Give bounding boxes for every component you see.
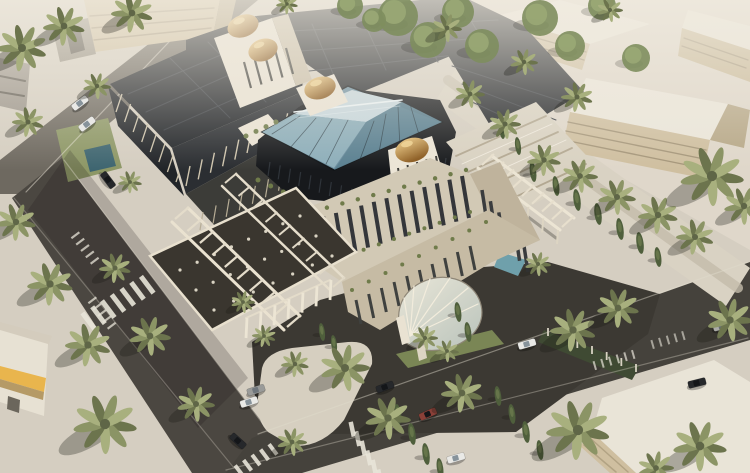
dot [330, 254, 333, 257]
palm-crown-center [468, 92, 473, 97]
palm-crown-center [18, 44, 26, 52]
palm-crown-center [100, 419, 110, 429]
tree-crown-light [558, 34, 576, 52]
dot [433, 176, 437, 180]
palm-crown-center [46, 280, 53, 287]
palm-crown-center [25, 119, 30, 124]
tick [330, 280, 331, 300]
dot [356, 197, 360, 201]
dot [212, 281, 215, 284]
dot [387, 189, 391, 193]
dot [434, 246, 438, 250]
tree-crown-light [625, 47, 642, 64]
palm-crown-center [502, 121, 507, 126]
dot [252, 290, 255, 293]
palm-crown-center [574, 94, 579, 99]
palm-crown-center [128, 180, 132, 184]
palm-crown-center [193, 401, 199, 407]
dot [350, 288, 354, 292]
tree-crown-light [445, 0, 464, 18]
palm-crown-center [285, 2, 289, 6]
dot [400, 263, 404, 267]
palm-crown-center [445, 26, 450, 31]
palm-crown-center [522, 60, 526, 64]
tree-crown-light [468, 32, 488, 52]
dot [178, 268, 181, 271]
palm-crown-center [707, 171, 717, 181]
palm-crown-center [423, 336, 427, 340]
dot [448, 172, 452, 176]
dot [280, 250, 283, 253]
dot [451, 237, 455, 241]
palm-crown-center [112, 265, 117, 270]
palm-crown-center [541, 157, 546, 162]
palm-crown-center [241, 300, 245, 304]
dot [298, 214, 301, 217]
palm-crown-center [614, 194, 620, 200]
tree-crown-light [364, 10, 378, 24]
dot [384, 271, 388, 275]
dot [247, 238, 250, 241]
palm-crown-center [536, 262, 540, 266]
palm-crown-center [290, 440, 295, 445]
palm-crown-center [384, 414, 391, 421]
dot [468, 210, 472, 214]
palm-crown-center [262, 334, 266, 338]
palm-crown-center [569, 326, 576, 333]
aerial-render-figure [0, 0, 750, 473]
dot [291, 272, 294, 275]
screenshot-root [0, 0, 750, 473]
palm-crown-center [741, 203, 747, 209]
dot [194, 288, 197, 291]
palm-crown-center [459, 390, 466, 397]
dot [417, 180, 421, 184]
tick [542, 218, 543, 232]
palm-crown-center [95, 84, 99, 88]
palm-crown-center [692, 234, 698, 240]
palm-crown-center [655, 212, 661, 218]
dot [392, 237, 396, 241]
dot [256, 178, 261, 183]
palm-crown-center [615, 305, 622, 312]
tree-crown-light [526, 4, 548, 26]
palm-crown-center [61, 23, 68, 30]
dot [377, 242, 381, 246]
scene-svg [0, 0, 750, 473]
dot [196, 261, 199, 264]
palm-crown-center [147, 333, 154, 340]
tick [302, 293, 303, 313]
dot [407, 232, 411, 236]
dot [340, 201, 344, 205]
dot [367, 280, 371, 284]
palm-crown-center [13, 219, 19, 225]
dot [438, 221, 442, 225]
dot [281, 222, 284, 225]
dot [422, 226, 426, 230]
dot [268, 184, 273, 189]
palm-crown-center [653, 465, 659, 471]
palm-crown-center [293, 362, 297, 366]
dot [271, 281, 274, 284]
palm-crown-center [696, 442, 705, 451]
dot [314, 234, 317, 237]
dot [325, 205, 329, 209]
palm-crown-center [129, 10, 136, 17]
dot [417, 254, 421, 258]
tick [260, 312, 261, 332]
dot [263, 258, 266, 261]
dot [212, 308, 215, 311]
dot [467, 229, 471, 233]
dot [311, 263, 314, 266]
tick [246, 318, 247, 338]
dot [484, 220, 488, 224]
palm-crown-center [445, 349, 449, 353]
palm-crown-center [608, 8, 612, 12]
dot [453, 215, 457, 219]
tick [274, 305, 275, 325]
tick [316, 286, 317, 306]
palm-crown-center [84, 341, 91, 348]
dot [371, 193, 375, 197]
tick [288, 299, 289, 319]
tick [557, 230, 558, 244]
dot [362, 248, 366, 252]
palm-crown-center [577, 173, 583, 179]
dot [402, 185, 406, 189]
palm-crown-center [726, 316, 733, 323]
palm-crown-center [341, 364, 349, 372]
palm-crown-center [573, 425, 583, 435]
